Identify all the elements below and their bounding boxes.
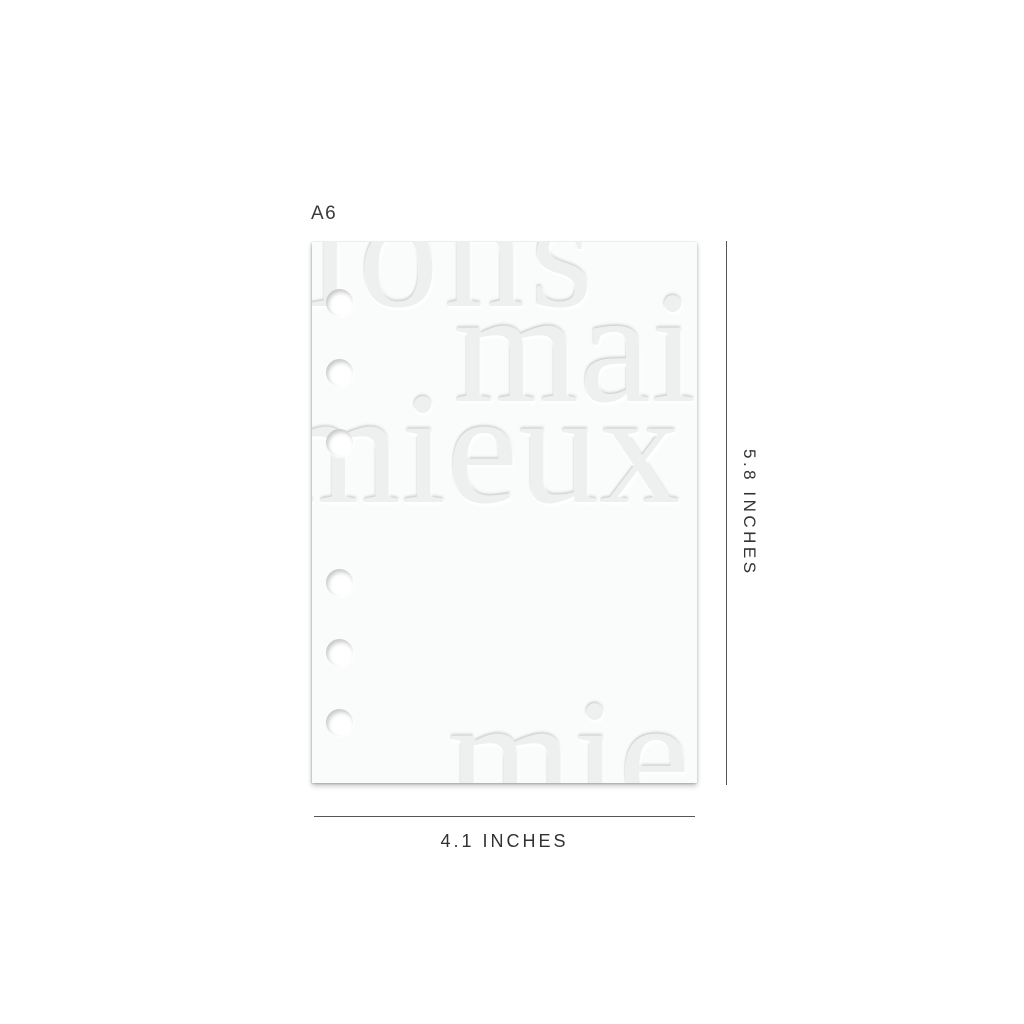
size-label: A6 (311, 203, 337, 225)
height-dimension-line (726, 241, 727, 785)
height-dimension-label: 5.8 INCHES (736, 241, 762, 785)
emboss-text-mieux: mieux (312, 368, 681, 528)
product-spec-image: A6 ions mai mieux mie 5.8 INCHES 4.1 INC… (0, 0, 1024, 1024)
emboss-text-mie: mie (448, 675, 691, 783)
punch-hole-4 (326, 569, 353, 596)
punch-hole-1 (326, 289, 353, 316)
punch-hole-6 (326, 709, 353, 736)
punch-hole-2 (326, 359, 353, 386)
width-dimension-line (314, 816, 695, 817)
emboss-text-ions: ions (312, 242, 599, 332)
punch-hole-3 (326, 429, 353, 456)
planner-page: ions mai mieux mie (312, 242, 697, 783)
emboss-text-mai: mai (454, 267, 697, 427)
punch-hole-5 (326, 639, 353, 666)
width-dimension-label: 4.1 INCHES (314, 831, 695, 852)
